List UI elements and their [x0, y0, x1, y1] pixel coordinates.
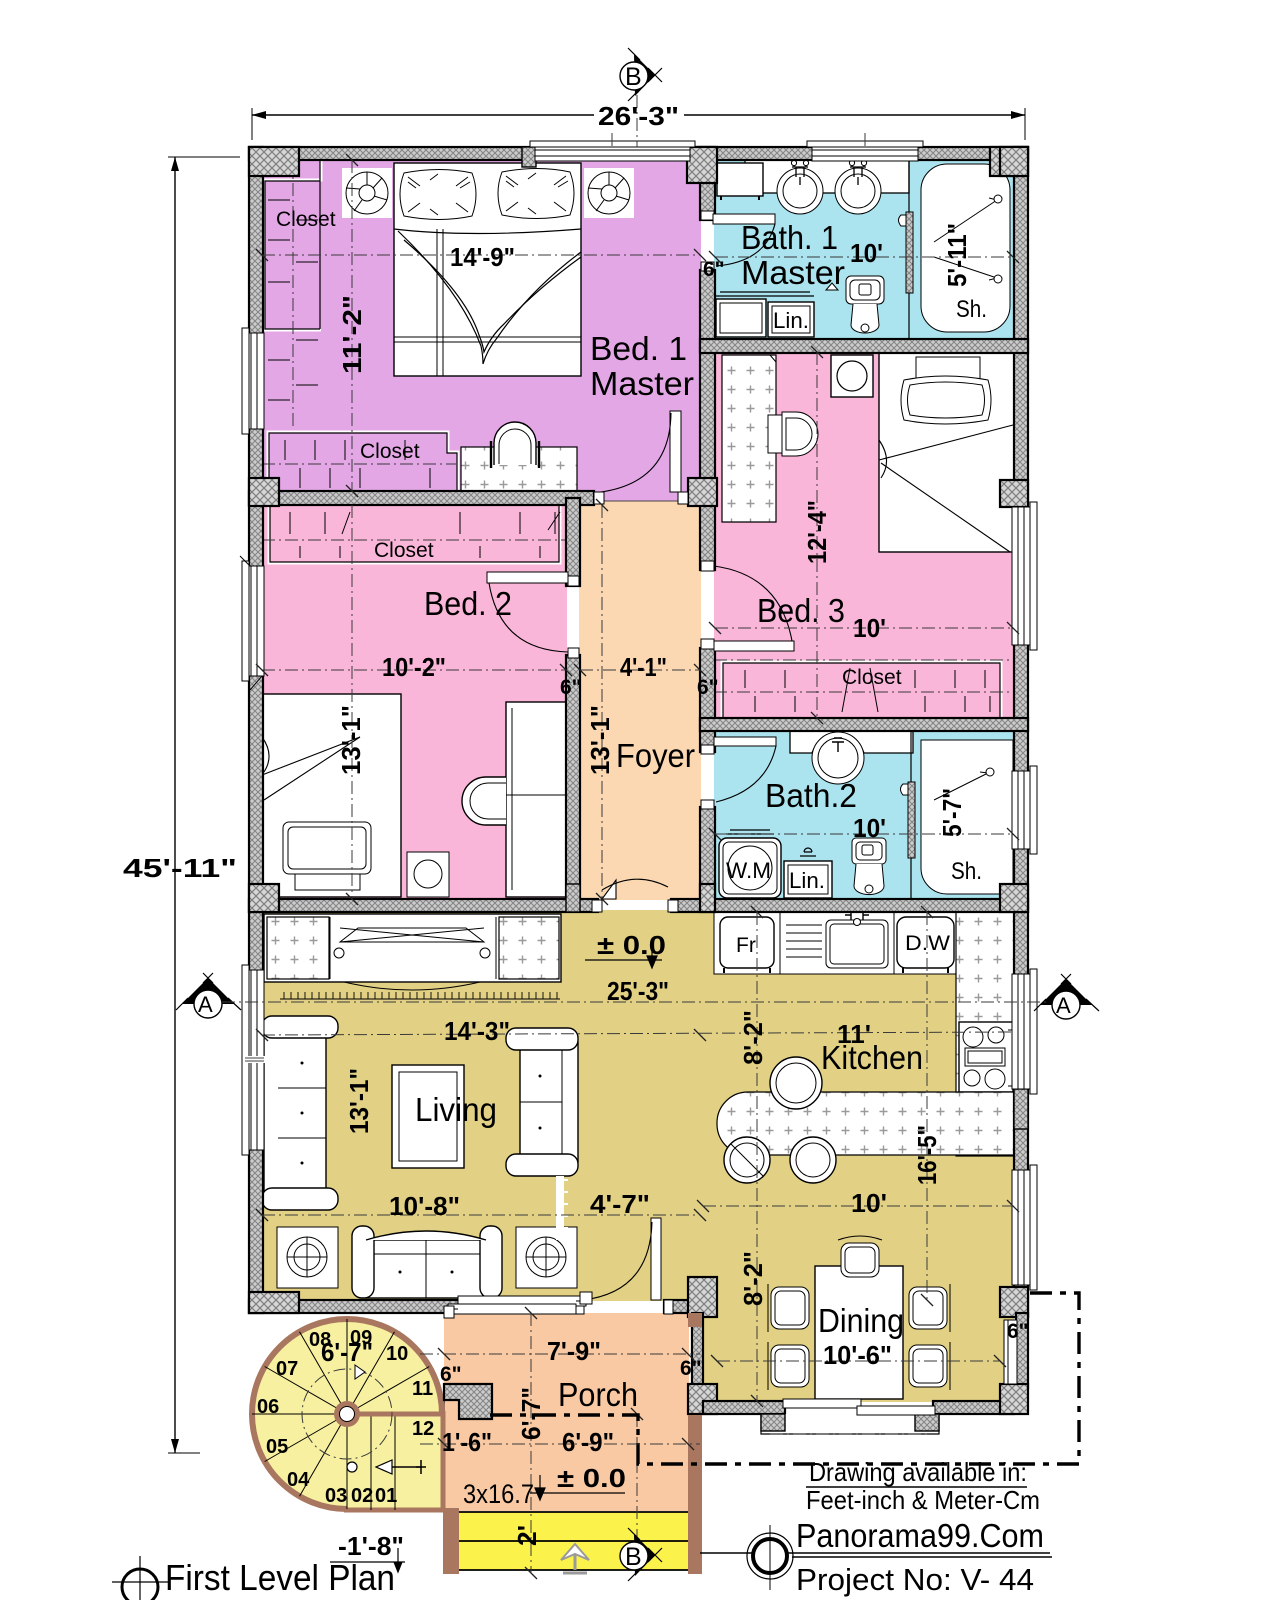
- svg-text:45'-11": 45'-11": [123, 853, 237, 883]
- svg-text:6'-9": 6'-9": [562, 1427, 614, 1457]
- svg-text:10'-6": 10'-6": [823, 1340, 892, 1370]
- svg-text:Master: Master: [741, 254, 845, 291]
- svg-text:14'-9": 14'-9": [450, 242, 515, 272]
- svg-text:5'-11": 5'-11": [942, 223, 972, 287]
- svg-text:Panorama99.Com: Panorama99.Com: [796, 1517, 1044, 1554]
- svg-text:First Level Plan: First Level Plan: [165, 1557, 395, 1598]
- svg-text:07: 07: [276, 1358, 298, 1380]
- svg-text:05: 05: [266, 1436, 288, 1458]
- svg-text:11'-2": 11'-2": [337, 295, 367, 374]
- svg-text:Dining: Dining: [818, 1302, 904, 1339]
- svg-text:B: B: [625, 1543, 642, 1571]
- svg-text:Bed. 1: Bed. 1: [590, 330, 687, 367]
- svg-text:6": 6": [560, 676, 582, 699]
- svg-text:02: 02: [351, 1485, 373, 1507]
- svg-text:11: 11: [412, 1378, 433, 1400]
- svg-text:Closet: Closet: [374, 539, 434, 562]
- svg-text:10': 10': [853, 613, 886, 643]
- svg-text:10'-8": 10'-8": [389, 1191, 460, 1221]
- svg-text:W.M: W.M: [726, 858, 771, 883]
- svg-text:13'-1": 13'-1": [336, 705, 366, 775]
- svg-text:Lin.: Lin.: [789, 868, 825, 893]
- svg-text:Bath.2: Bath.2: [765, 777, 857, 814]
- svg-text:Lin.: Lin.: [773, 308, 809, 333]
- svg-text:A: A: [1056, 993, 1071, 1018]
- svg-text:Project No: V- 44: Project No: V- 44: [796, 1562, 1034, 1597]
- svg-text:3x16.7: 3x16.7: [463, 1479, 534, 1509]
- svg-text:10': 10': [853, 813, 886, 843]
- svg-text:11': 11': [837, 1019, 871, 1049]
- svg-text:7'-9": 7'-9": [547, 1336, 601, 1366]
- svg-text:10: 10: [386, 1343, 408, 1365]
- svg-text:Living: Living: [415, 1091, 497, 1128]
- svg-text:01: 01: [375, 1485, 397, 1507]
- svg-text:Bed. 2: Bed. 2: [424, 585, 512, 622]
- svg-text:13'-1": 13'-1": [344, 1068, 374, 1134]
- svg-text:1'-6": 1'-6": [442, 1427, 492, 1457]
- svg-text:Feet-inch & Meter-Cm: Feet-inch & Meter-Cm: [806, 1485, 1040, 1515]
- svg-text:8'-2": 8'-2": [738, 1251, 768, 1306]
- svg-text:6": 6": [703, 258, 725, 281]
- svg-text:2': 2': [512, 1525, 542, 1546]
- svg-text:10': 10': [850, 238, 883, 268]
- svg-text:12: 12: [412, 1418, 434, 1440]
- svg-text:6'-7": 6'-7": [516, 1387, 546, 1440]
- svg-text:6": 6": [680, 1357, 702, 1380]
- svg-text:± 0.0: ± 0.0: [557, 1463, 626, 1493]
- svg-text:26'-3": 26'-3": [598, 101, 679, 131]
- svg-text:Bath. 1: Bath. 1: [741, 219, 838, 256]
- svg-text:12'-4": 12'-4": [802, 500, 832, 564]
- svg-text:Sh.: Sh.: [956, 296, 987, 323]
- svg-text:6": 6": [440, 1363, 462, 1386]
- svg-text:Closet: Closet: [360, 440, 420, 463]
- svg-text:03: 03: [325, 1485, 347, 1507]
- svg-text:Fr: Fr: [736, 934, 756, 957]
- svg-text:A: A: [198, 992, 213, 1017]
- svg-text:6": 6": [697, 676, 719, 699]
- svg-text:13'-1": 13'-1": [585, 705, 615, 775]
- svg-text:Master: Master: [590, 365, 694, 402]
- svg-text:Bed. 3: Bed. 3: [757, 592, 845, 629]
- svg-text:Closet: Closet: [842, 666, 902, 689]
- svg-text:8'-2": 8'-2": [738, 1010, 768, 1065]
- svg-text:B: B: [625, 63, 642, 91]
- svg-text:Closet: Closet: [276, 208, 336, 231]
- svg-text:10'-2": 10'-2": [382, 652, 446, 682]
- svg-text:4'-7": 4'-7": [590, 1189, 650, 1219]
- svg-text:10': 10': [851, 1188, 887, 1218]
- svg-text:Porch: Porch: [558, 1376, 638, 1413]
- svg-text:14'-3": 14'-3": [444, 1016, 510, 1046]
- svg-text:Sh.: Sh.: [951, 858, 982, 885]
- svg-text:06: 06: [257, 1396, 279, 1418]
- svg-text:16'-5": 16'-5": [912, 1125, 942, 1185]
- svg-text:D.W: D.W: [905, 932, 950, 955]
- svg-text:4'-1": 4'-1": [620, 652, 667, 682]
- svg-text:6'-7": 6'-7": [321, 1337, 373, 1367]
- svg-text:04: 04: [287, 1469, 310, 1491]
- svg-text:25'-3": 25'-3": [607, 976, 669, 1006]
- svg-text:6": 6": [1007, 1320, 1029, 1343]
- svg-text:5'-7": 5'-7": [937, 788, 967, 837]
- svg-text:Foyer: Foyer: [616, 737, 695, 774]
- svg-text:Drawing available in:: Drawing available in:: [809, 1457, 1027, 1487]
